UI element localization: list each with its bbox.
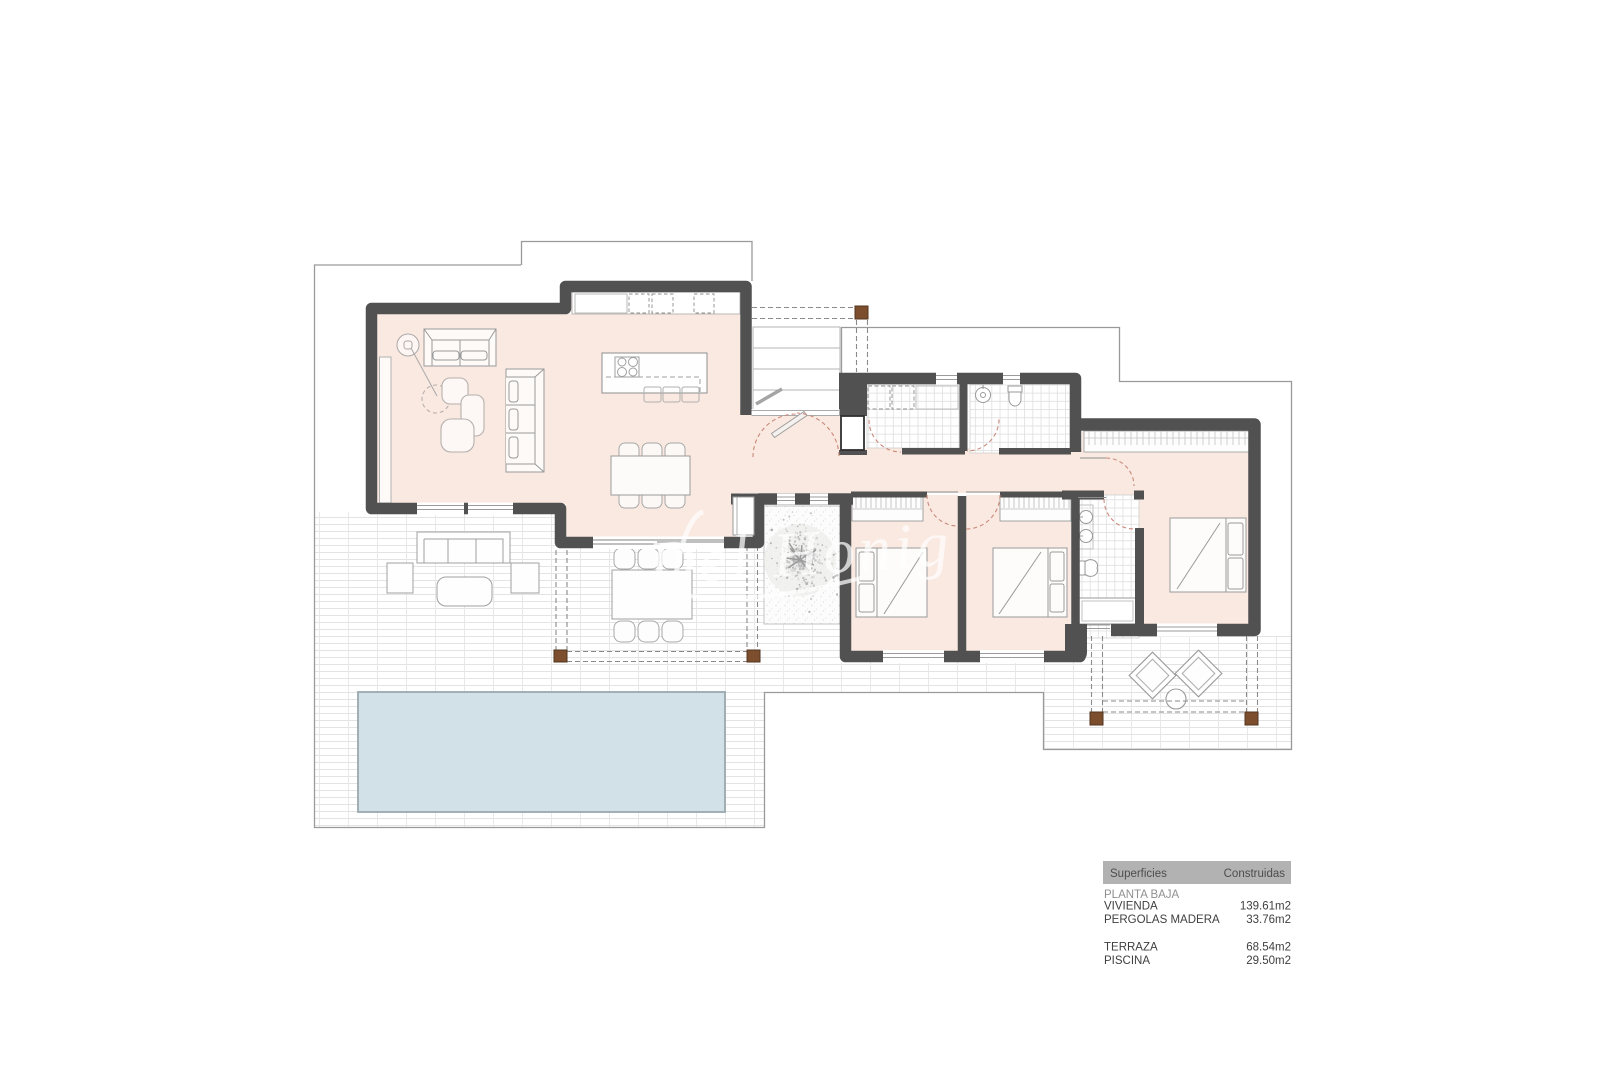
svg-text:PISCINA: PISCINA [1104, 955, 1150, 967]
svg-text:68.54m2: 68.54m2 [1246, 942, 1291, 954]
svg-text:PERGOLAS MADERA: PERGOLAS MADERA [1104, 914, 1220, 926]
svg-text:33.76m2: 33.76m2 [1246, 914, 1291, 926]
svg-text:139.61m2: 139.61m2 [1240, 901, 1291, 913]
svg-text:PLANTA BAJA: PLANTA BAJA [1104, 889, 1180, 901]
svg-text:Superficies: Superficies [1110, 868, 1167, 880]
svg-text:VIVIENDA: VIVIENDA [1104, 901, 1158, 913]
svg-text:TERRAZA: TERRAZA [1104, 942, 1158, 954]
svg-text:29.50m2: 29.50m2 [1246, 955, 1291, 967]
svg-text:Construidas: Construidas [1224, 868, 1286, 880]
